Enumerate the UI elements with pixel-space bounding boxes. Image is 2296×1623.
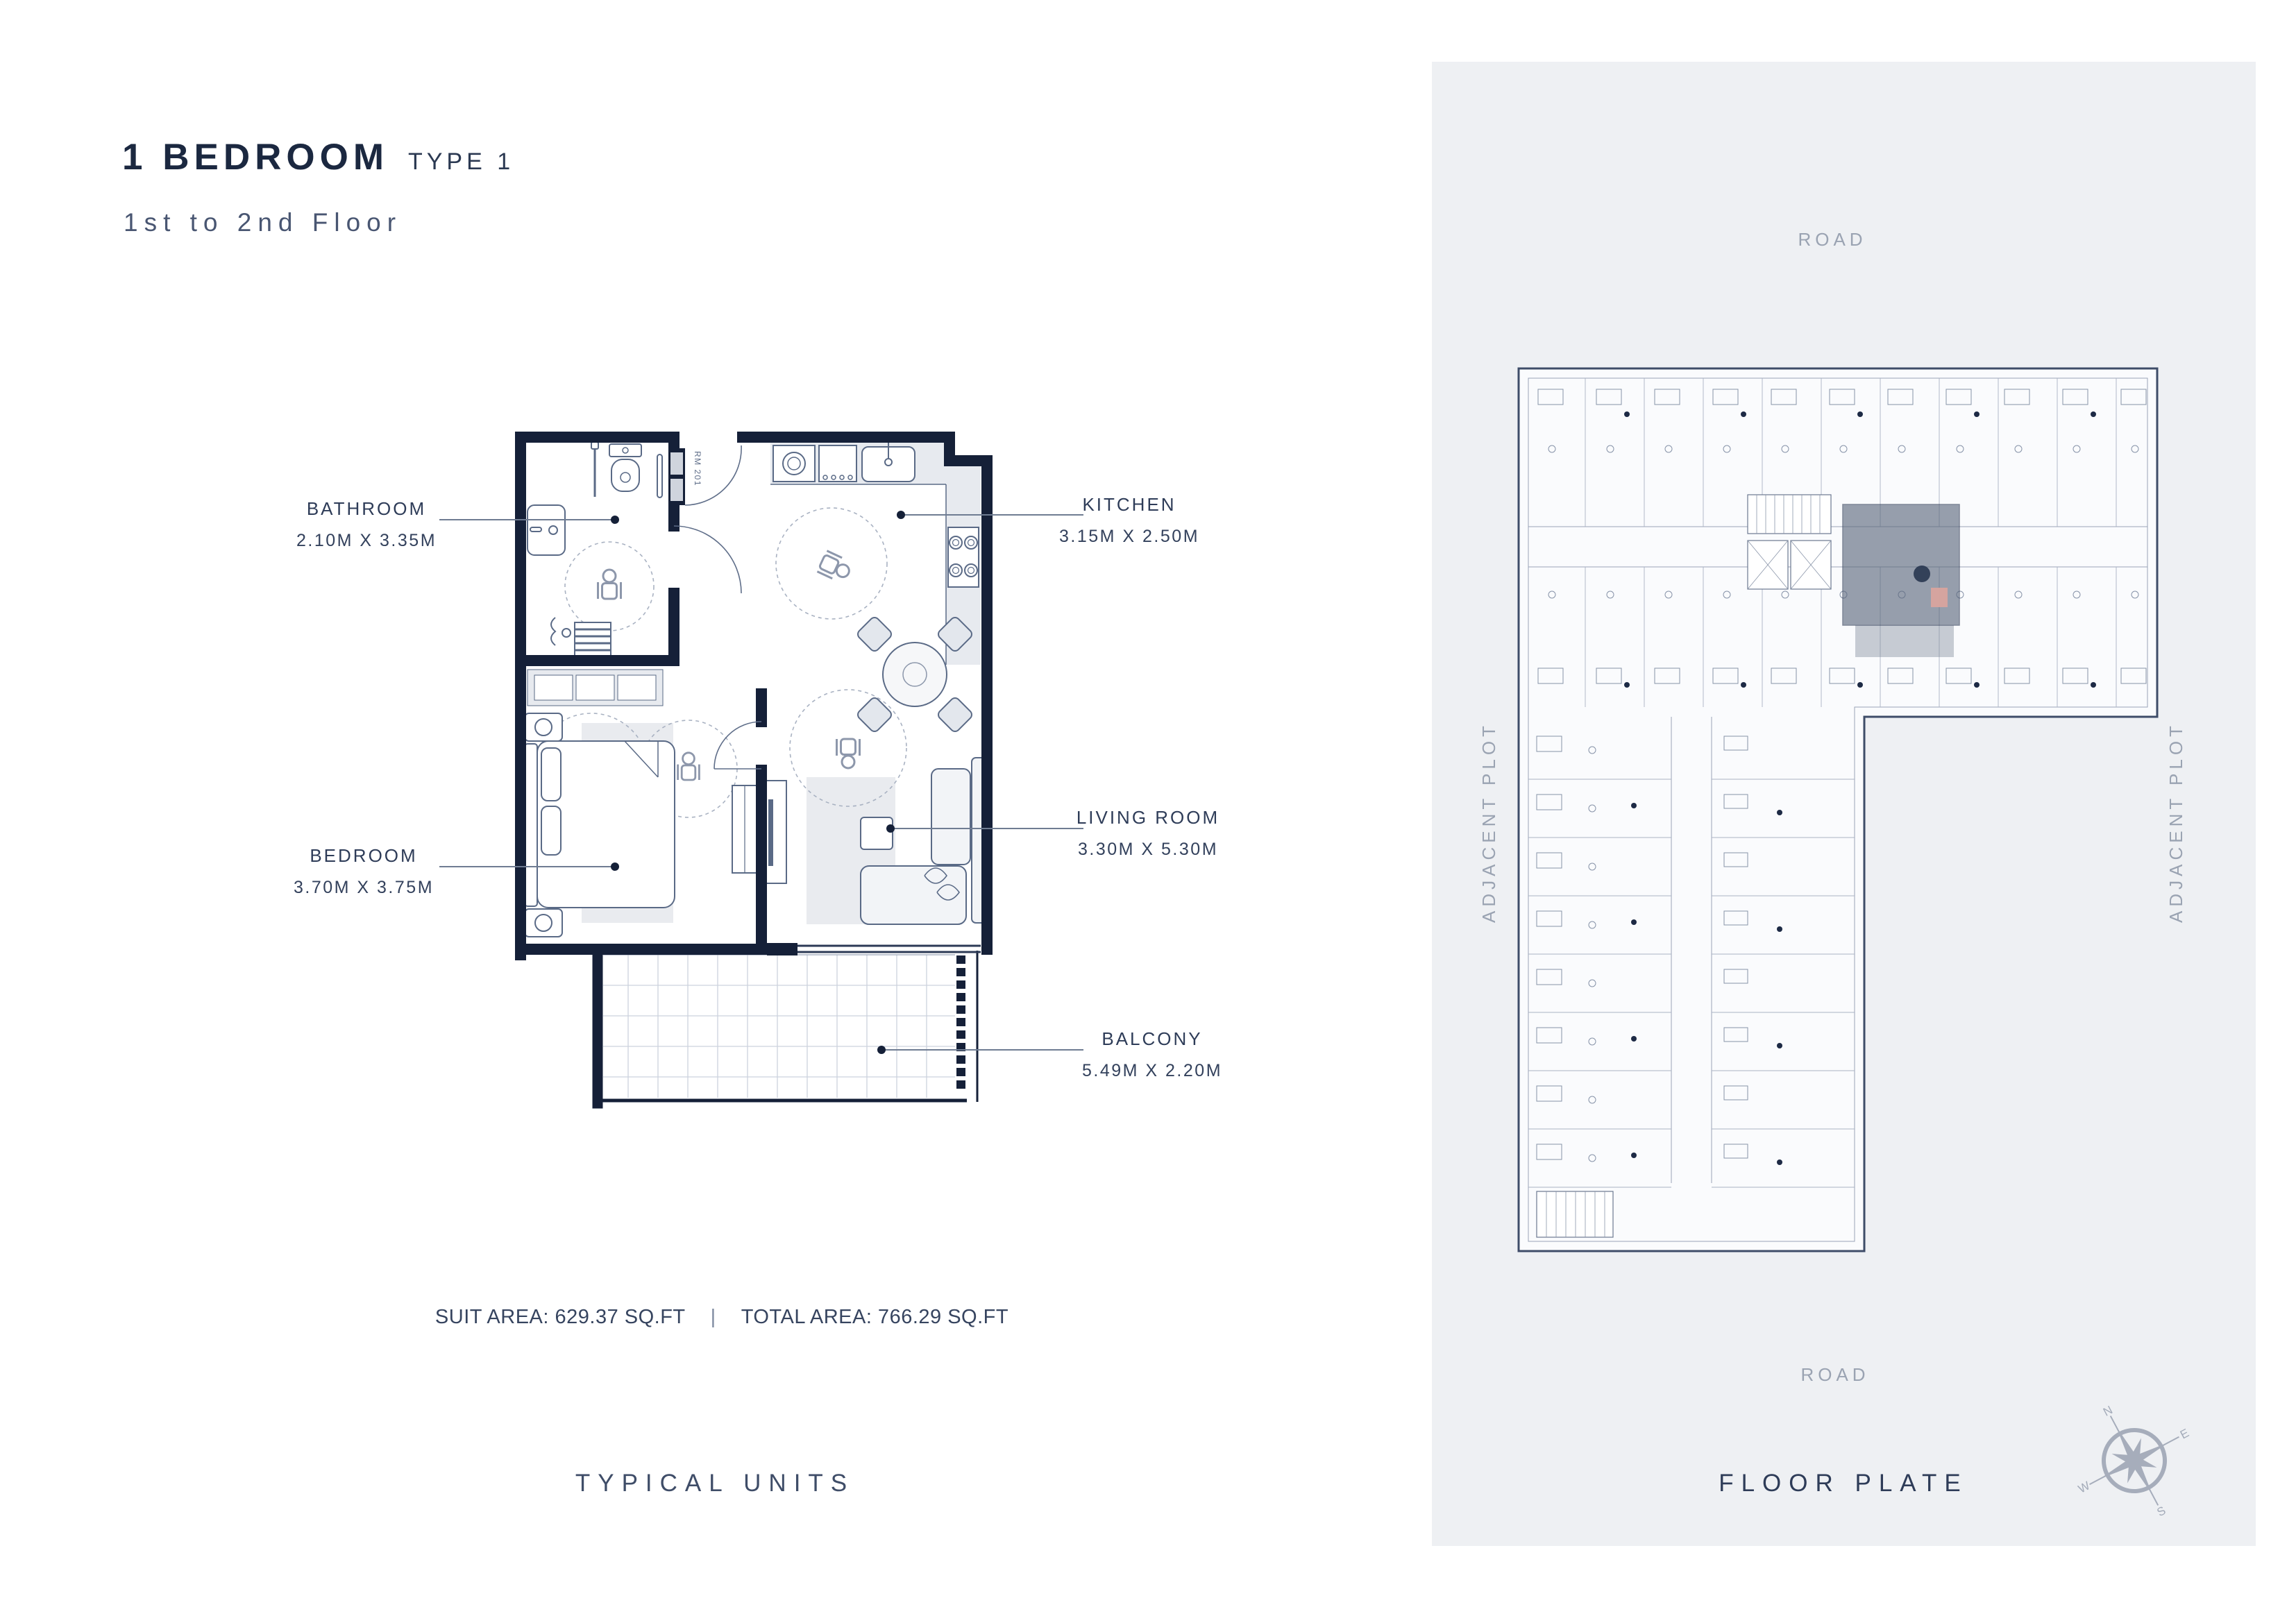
compass-rose-icon: N E S W — [2068, 1395, 2200, 1527]
total-area: TOTAL AREA: 766.29 SQ.FT — [741, 1306, 1008, 1329]
building-floor-plate — [1516, 366, 2160, 1254]
floor-range-subtitle: 1st to 2nd Floor — [124, 208, 402, 237]
room-name: LIVING ROOM — [1037, 801, 1259, 833]
balcony-glazing — [797, 946, 981, 952]
room-dimensions: 3.70M X 3.75M — [253, 872, 475, 903]
room-dimensions: 2.10M X 3.35M — [255, 525, 478, 556]
floor-plate-caption: FLOOR PLATE — [1566, 1470, 2121, 1497]
area-summary: SUIT AREA: 629.37 SQ.FT | TOTAL AREA: 76… — [416, 1306, 1027, 1329]
label-balcony: BALCONY 5.49M X 2.20M — [1041, 1023, 1263, 1087]
adjacent-plot-label-right: ADJACENT PLOT — [2166, 670, 2193, 975]
area-separator: | — [711, 1306, 716, 1329]
dining-set — [856, 615, 974, 733]
unit-type-variant: TYPE 1 — [408, 148, 514, 175]
room-name: KITCHEN — [1018, 488, 1240, 520]
room-dimensions: 5.49M X 2.20M — [1041, 1055, 1263, 1087]
label-bathroom: BATHROOM 2.10M X 3.35M — [255, 493, 478, 556]
unit-type-title: 1 BEDROOM — [122, 137, 389, 178]
bedroom-furniture — [525, 713, 757, 937]
room-dimensions: 3.15M X 2.50M — [1018, 520, 1240, 552]
room-number: RM 201 — [693, 451, 702, 486]
brochure-page: 1 BEDROOMTYPE 1 1st to 2nd Floor — [0, 0, 2296, 1623]
suit-area: SUIT AREA: 629.37 SQ.FT — [435, 1306, 686, 1329]
compass-south: S — [2154, 1504, 2168, 1519]
balcony-screen-hatch — [956, 951, 977, 1102]
compass-east: E — [2178, 1426, 2191, 1441]
adjacent-plot-label-left: ADJACENT PLOT — [1478, 670, 1506, 975]
label-bedroom: BEDROOM 3.70M X 3.75M — [253, 840, 475, 903]
label-living-room: LIVING ROOM 3.30M X 5.30M — [1037, 801, 1259, 865]
room-name: BALCONY — [1041, 1023, 1263, 1055]
room-name: BEDROOM — [253, 840, 475, 872]
window-mullion — [767, 943, 797, 955]
balcony-tiles — [603, 955, 955, 1098]
highlighted-unit — [1843, 504, 1959, 657]
typical-units-caption: TYPICAL UNITS — [437, 1470, 993, 1497]
road-label-top: ROAD — [1749, 229, 1916, 250]
road-label-bottom: ROAD — [1752, 1364, 1918, 1386]
room-dimensions: 3.30M X 5.30M — [1037, 833, 1259, 865]
label-kitchen: KITCHEN 3.15M X 2.50M — [1018, 488, 1240, 552]
room-name: BATHROOM — [255, 493, 478, 525]
bathroom-fixtures — [527, 442, 662, 656]
compass-north: N — [2101, 1403, 2115, 1419]
page-title: 1 BEDROOMTYPE 1 — [122, 136, 514, 178]
building-outline — [1519, 368, 2157, 1251]
